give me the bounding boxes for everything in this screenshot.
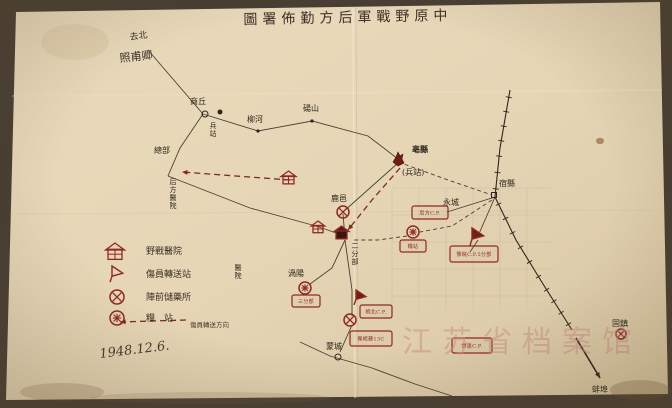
place-label: 碭山 <box>303 103 319 113</box>
unit-box-text: 后方C.P. <box>420 210 441 217</box>
legend-label-transfer-station: 傷員轉送站 <box>146 268 191 280</box>
vertical-note: 后方醫院 <box>170 177 177 210</box>
town-dot-shape <box>218 110 223 115</box>
place-label: 商丘 <box>190 96 206 106</box>
place: 永城 <box>443 197 459 207</box>
place-label: 亳縣 <box>412 144 428 154</box>
place-label: 柳河 <box>247 114 263 124</box>
unit-label-box: 豫皖蘇13C <box>350 331 392 346</box>
legend-label-grain-station: 糧 站 <box>146 312 173 324</box>
vertical-note: 兵站 <box>210 121 217 138</box>
place-marker-dot <box>256 129 259 132</box>
unit-box-text: 豫皖蘇13C <box>358 336 385 343</box>
house-body <box>336 231 347 239</box>
legend-label-field-hospital: 野戰醫院 <box>146 245 182 257</box>
legend-label-forward-depot: 陣前儲藥所 <box>146 291 191 303</box>
archive-watermark: 江苏省档案馆 <box>402 325 642 360</box>
legend-label-transfer-route: 傷員轉送方向 <box>190 320 229 329</box>
unit-box-text: 三分部 <box>298 298 314 305</box>
place: 亳縣 <box>412 144 428 154</box>
place-label: 總部 <box>154 145 170 155</box>
unit-label-box: 三分部 <box>292 295 320 307</box>
place-label: 鹿邑 <box>331 193 347 203</box>
railway-tick <box>495 172 501 173</box>
place-label: 蒙城 <box>326 341 342 351</box>
town-dot <box>218 110 223 115</box>
place: 蚌埠 <box>592 384 608 394</box>
unit-label-box: 皖北C.P. <box>360 305 392 318</box>
unit-box-text: 皖北C.P. <box>366 309 387 316</box>
place-label: 渦陽 <box>288 268 304 278</box>
vertical-note: 二分部 <box>352 242 359 266</box>
place-marker-dot <box>310 119 313 122</box>
place: 渦陽 <box>288 268 304 278</box>
unit-box-text: 豫皖C.P.5分部 <box>456 251 491 258</box>
unit-label-box: 后方C.P. <box>412 206 448 219</box>
railway-tick <box>496 156 502 157</box>
place: 總部 <box>154 145 170 155</box>
place-label: 永城 <box>443 197 459 207</box>
place-label: 宿縣 <box>499 178 515 188</box>
archival-map-photo: 后方C.P.糧站豫皖C.P.5分部三分部皖北C.P.豫皖蘇13C懷遠C.P.商丘… <box>0 0 672 408</box>
unit-box-text: 糧站 <box>408 243 419 250</box>
place: 鹿邑 <box>331 193 347 203</box>
unit-label-box: 豫皖C.P.5分部 <box>450 246 498 262</box>
railway-tick <box>493 189 499 190</box>
unit-label-box: 糧站 <box>400 240 426 252</box>
vertical-note: 醫院 <box>235 264 242 280</box>
place-label: 蚌埠 <box>592 384 608 394</box>
place: (兵站) <box>402 167 424 177</box>
place-label: (兵站) <box>402 167 424 177</box>
